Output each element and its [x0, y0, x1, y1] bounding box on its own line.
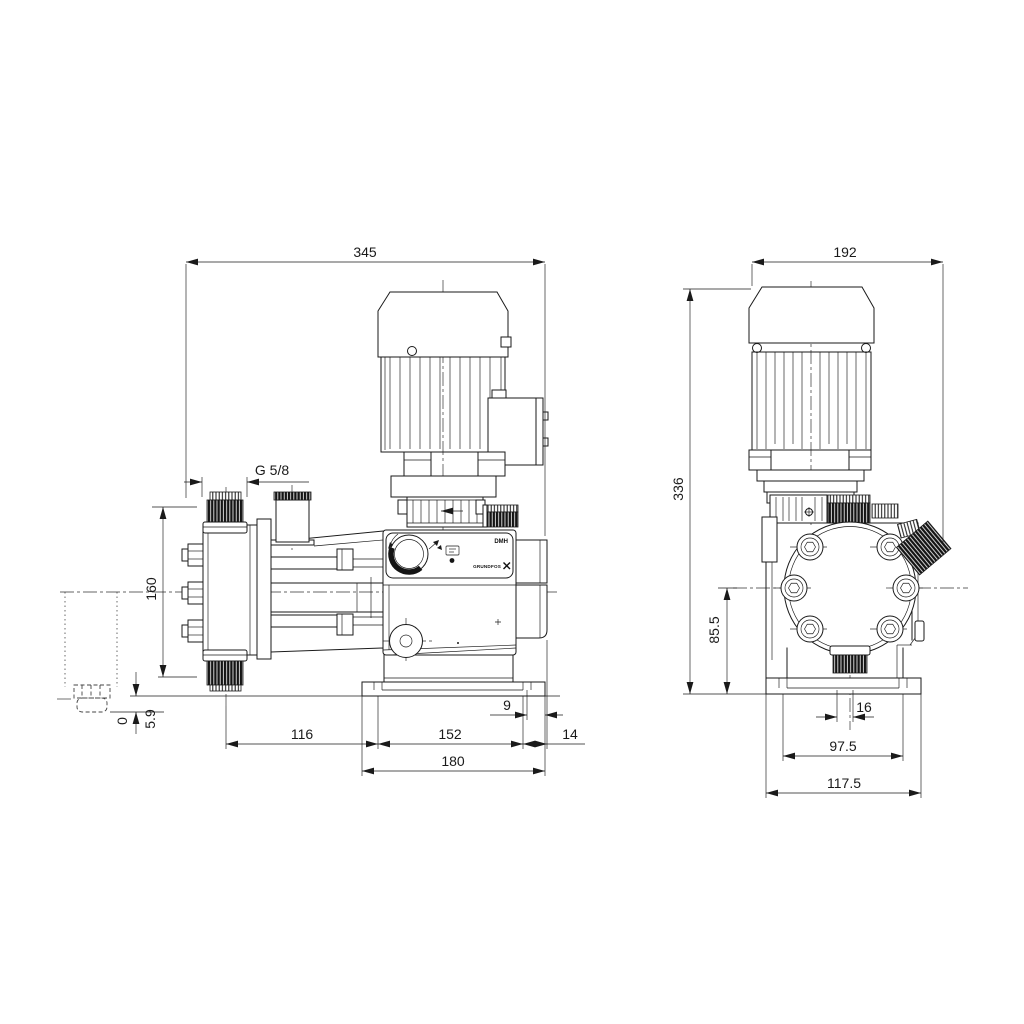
- dim-label: 85.5: [706, 616, 722, 643]
- side-base-plate: [362, 682, 545, 696]
- vent-cylinder: [271, 492, 314, 545]
- dim-label: 336: [670, 477, 686, 501]
- dim-label: 9: [503, 697, 511, 713]
- motor-flange-side: [391, 476, 496, 497]
- motor-cover-screw: [408, 347, 417, 356]
- motor-flange-front: [757, 470, 864, 481]
- dim-label: 160: [143, 577, 159, 601]
- dimensional-drawing: DMH GRUNDFOS: [0, 0, 1024, 1024]
- dim-label: 5.9: [142, 709, 158, 729]
- dim-label: 345: [353, 244, 377, 260]
- stroke-knob-collar: [487, 505, 518, 512]
- discharge-valve: [203, 492, 247, 533]
- dim-label: 117.5: [827, 775, 861, 791]
- dim-label: G 5/8: [255, 462, 289, 478]
- brand-logo-text: GRUNDFOS: [473, 564, 501, 569]
- dim-label: 192: [833, 244, 857, 260]
- dim-label: 14: [562, 726, 578, 742]
- front-base-plate: [766, 678, 921, 694]
- dim-label: 0: [114, 717, 130, 725]
- dim-label: 116: [291, 726, 314, 742]
- side-rear-connection: [516, 540, 547, 638]
- dim-label: 152: [438, 726, 462, 742]
- head-body: [203, 525, 257, 655]
- dim-label: 180: [441, 753, 465, 769]
- model-label: DMH: [494, 539, 508, 545]
- panel-led-dot: [450, 558, 455, 563]
- stroke-knob-front: [828, 503, 870, 523]
- dim-label: 97.5: [829, 738, 856, 754]
- dim-label: 16: [856, 699, 872, 715]
- head-back-flange: [257, 519, 271, 659]
- front-bottom-valve: [830, 646, 870, 673]
- stroke-knob-knurl: [487, 512, 518, 527]
- suction-valve: [203, 650, 247, 691]
